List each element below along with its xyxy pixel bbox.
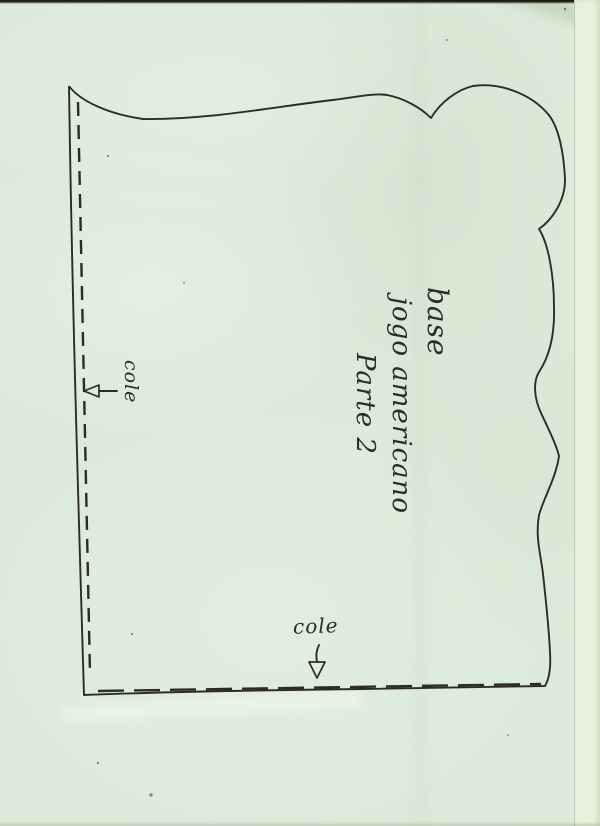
dust-specks [97,8,566,797]
pattern-drawing [0,0,600,826]
seam-dashed-line-left [78,102,90,674]
pattern-title: base jogo americano Parte 2 [347,281,455,549]
glue-label-bottom: cole [293,613,339,639]
arrow-left-icon [84,385,117,397]
pattern-title-line-3: Parte 2 [347,281,383,549]
pattern-title-line-1: base [419,281,455,549]
pattern-title-line-2: jogo americano [383,281,419,549]
arrow-down-icon [309,645,325,678]
pattern-outline [69,85,565,695]
glue-label-left: cole [119,360,143,403]
scanned-pattern-page: base jogo americano Parte 2 cole cole [0,0,600,826]
